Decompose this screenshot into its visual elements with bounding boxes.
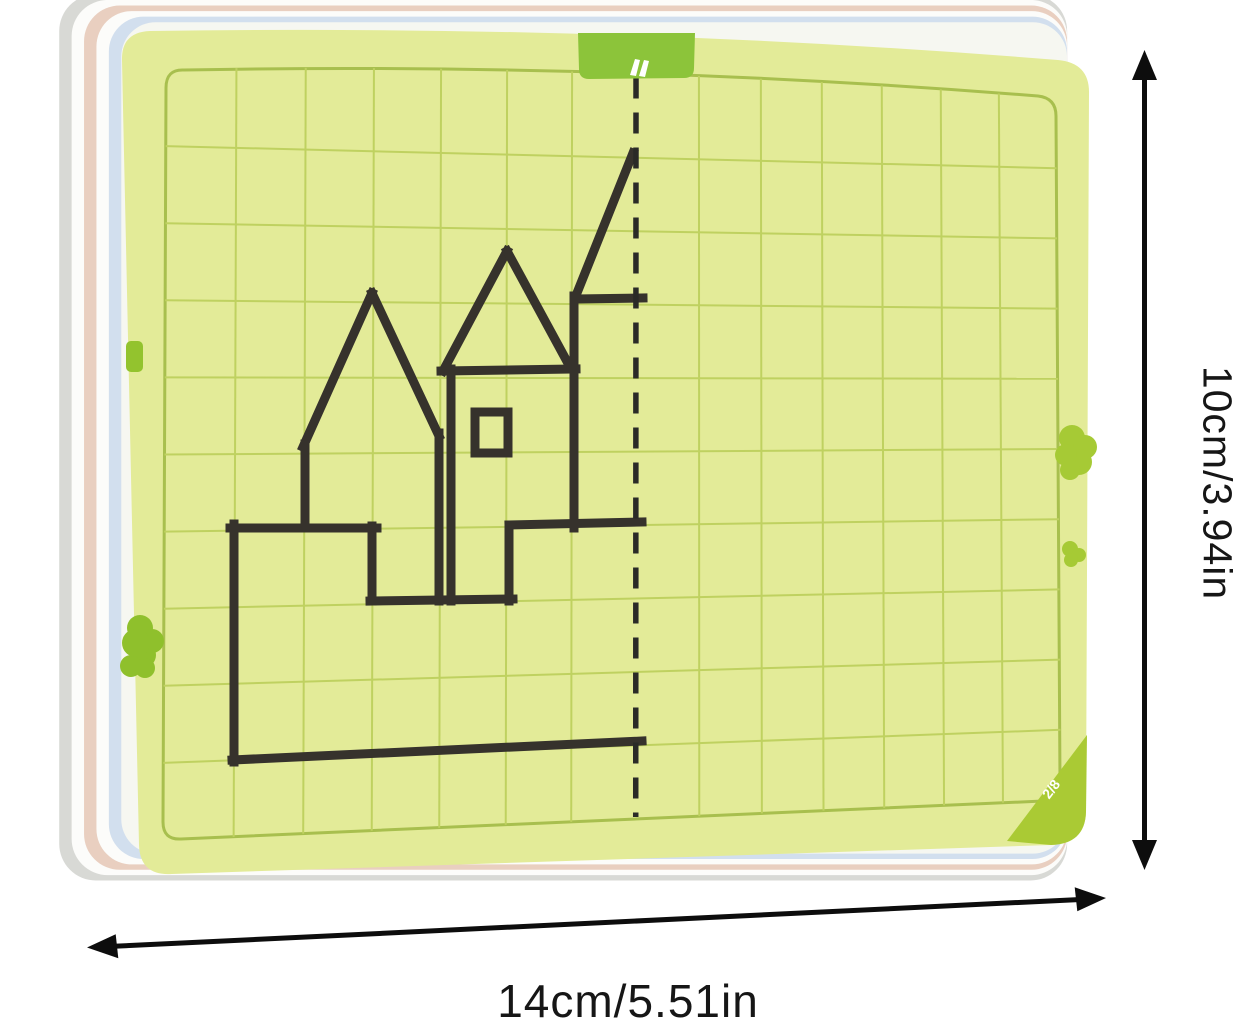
- arrow-head-up-icon: [1132, 50, 1157, 80]
- height-dimension-label: 10cm/3.94in: [1194, 366, 1241, 600]
- hanging-tab: [578, 33, 695, 79]
- height-dimension-arrow: [1132, 50, 1157, 870]
- arrow-head-left-icon: [87, 934, 118, 958]
- width-dimension-arrow: [87, 887, 1106, 958]
- right-blob-large: [1055, 425, 1097, 480]
- width-dimension-label: 14cm/5.51in: [497, 974, 759, 1028]
- left-edge-tab: [126, 341, 143, 372]
- arrow-head-down-icon: [1132, 840, 1157, 870]
- arrow-head-right-icon: [1075, 887, 1106, 911]
- scene-canvas: 2/8: [0, 0, 1250, 1031]
- product-image: 2/8: [0, 0, 1250, 1031]
